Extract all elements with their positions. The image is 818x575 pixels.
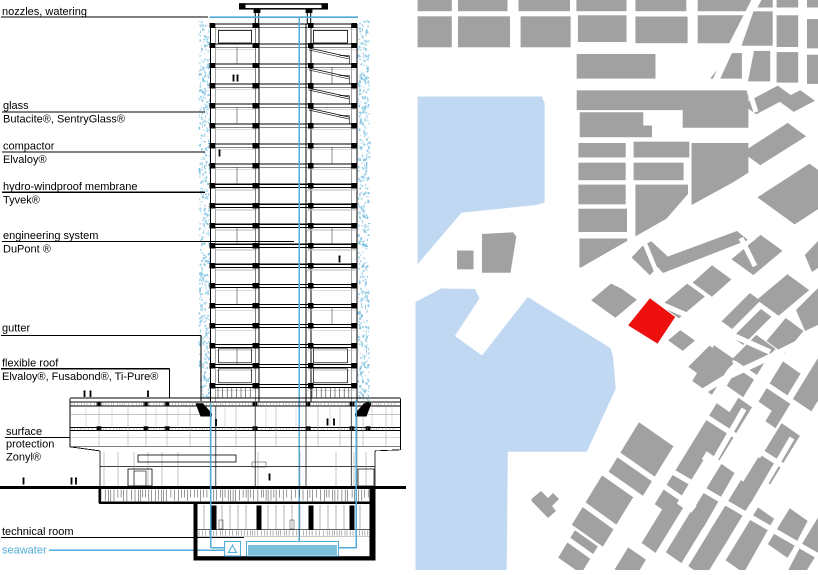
svg-text:Tyvek®: Tyvek® [3,195,40,207]
svg-text:nozzles, watering: nozzles, watering [2,6,87,18]
svg-text:gutter: gutter [2,323,30,335]
svg-text:flexible roof: flexible roof [2,358,59,370]
svg-text:glass: glass [3,100,29,112]
svg-text:DuPont ®: DuPont ® [3,244,51,256]
svg-text:compactor: compactor [3,141,55,153]
svg-text:Elvaloy®: Elvaloy® [3,154,47,166]
svg-text:Zonyl®: Zonyl® [6,452,41,464]
svg-text:surface: surface [6,426,42,438]
svg-text:Butacite®, SentryGlass®: Butacite®, SentryGlass® [3,114,125,126]
svg-text:protection: protection [6,439,54,451]
svg-text:engineering system: engineering system [3,230,98,242]
svg-text:seawater: seawater [2,545,47,557]
svg-text:hydro-windproof membrane: hydro-windproof membrane [3,181,138,193]
svg-text:Elvaloy®, Fusabond®, Ti-Pure®: Elvaloy®, Fusabond®, Ti-Pure® [2,371,158,383]
svg-text:technical room: technical room [2,526,74,538]
